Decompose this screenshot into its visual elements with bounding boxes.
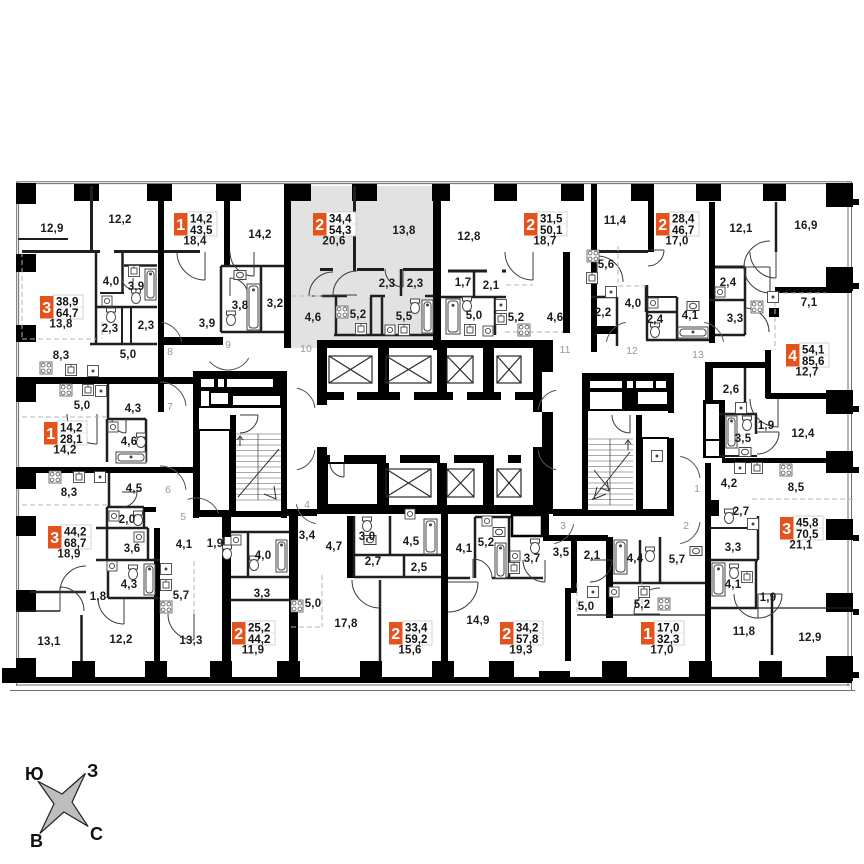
svg-text:12,2: 12,2 <box>108 214 131 226</box>
svg-text:4: 4 <box>788 348 797 365</box>
svg-text:2,4: 2,4 <box>647 314 664 326</box>
svg-text:1: 1 <box>643 626 652 643</box>
svg-text:3: 3 <box>560 520 566 532</box>
svg-text:4,6: 4,6 <box>305 312 322 324</box>
svg-text:2,7: 2,7 <box>733 506 750 518</box>
svg-text:3,9: 3,9 <box>128 281 145 293</box>
svg-text:14,2: 14,2 <box>60 423 82 435</box>
svg-text:3,5: 3,5 <box>735 433 752 445</box>
svg-text:12,7: 12,7 <box>795 367 818 379</box>
svg-text:2,0: 2,0 <box>119 514 136 526</box>
svg-text:3,7: 3,7 <box>524 553 541 565</box>
svg-text:17,0: 17,0 <box>665 236 688 248</box>
svg-text:17,0: 17,0 <box>650 645 673 657</box>
svg-text:3,3: 3,3 <box>727 313 744 325</box>
svg-text:5,2: 5,2 <box>350 309 367 321</box>
svg-text:12,8: 12,8 <box>457 231 481 243</box>
svg-text:4,0: 4,0 <box>625 298 642 310</box>
svg-text:11: 11 <box>560 344 571 356</box>
svg-text:2: 2 <box>502 626 511 643</box>
svg-text:1: 1 <box>176 217 185 234</box>
svg-text:14,2: 14,2 <box>248 229 271 241</box>
svg-text:1: 1 <box>46 426 55 443</box>
svg-text:2,1: 2,1 <box>584 550 601 562</box>
svg-text:3,2: 3,2 <box>267 298 284 310</box>
svg-text:18,9: 18,9 <box>57 549 80 561</box>
svg-text:19,3: 19,3 <box>509 645 532 657</box>
svg-text:7: 7 <box>167 401 173 413</box>
svg-text:3,5: 3,5 <box>553 547 570 559</box>
svg-text:6: 6 <box>165 484 171 496</box>
svg-text:12,1: 12,1 <box>729 223 753 235</box>
svg-text:17,8: 17,8 <box>334 618 358 630</box>
svg-text:3: 3 <box>782 521 791 538</box>
svg-text:14,2: 14,2 <box>53 445 76 457</box>
svg-text:38,9: 38,9 <box>56 297 78 309</box>
svg-text:2,3: 2,3 <box>407 278 424 290</box>
svg-text:18,4: 18,4 <box>183 236 207 248</box>
svg-text:13,3: 13,3 <box>179 635 202 647</box>
svg-text:1,7: 1,7 <box>455 277 472 289</box>
svg-text:11,9: 11,9 <box>242 645 265 657</box>
svg-text:4,1: 4,1 <box>176 539 193 551</box>
svg-text:14,9: 14,9 <box>466 615 489 627</box>
svg-text:1,9: 1,9 <box>207 538 224 550</box>
svg-text:20,6: 20,6 <box>322 236 345 248</box>
svg-text:13,8: 13,8 <box>392 225 416 237</box>
svg-text:8,3: 8,3 <box>53 350 70 362</box>
svg-text:9: 9 <box>225 339 231 351</box>
svg-text:4: 4 <box>304 499 310 511</box>
svg-text:33,4: 33,4 <box>405 623 428 635</box>
svg-text:5,2: 5,2 <box>508 312 525 324</box>
svg-text:5: 5 <box>180 511 186 523</box>
svg-text:34,4: 34,4 <box>329 214 352 226</box>
svg-text:2: 2 <box>391 626 400 643</box>
svg-text:3,0: 3,0 <box>359 531 376 543</box>
svg-text:4,1: 4,1 <box>725 579 742 591</box>
svg-text:4,5: 4,5 <box>126 483 143 495</box>
svg-text:45,8: 45,8 <box>796 518 819 530</box>
svg-text:5,2: 5,2 <box>478 537 495 549</box>
svg-text:12,9: 12,9 <box>798 632 821 644</box>
svg-text:5,5: 5,5 <box>396 311 413 323</box>
svg-text:3,4: 3,4 <box>299 530 316 542</box>
svg-text:2,5: 2,5 <box>411 562 428 574</box>
svg-text:2,3: 2,3 <box>102 323 119 335</box>
svg-text:4,5: 4,5 <box>403 536 420 548</box>
svg-text:2,3: 2,3 <box>379 278 396 290</box>
svg-text:2: 2 <box>658 217 667 234</box>
svg-text:2,3: 2,3 <box>138 320 155 332</box>
svg-text:2,6: 2,6 <box>723 384 740 396</box>
svg-text:8,5: 8,5 <box>788 482 805 494</box>
svg-text:4,3: 4,3 <box>125 403 142 415</box>
svg-text:8,3: 8,3 <box>61 487 78 499</box>
svg-text:10: 10 <box>300 343 312 355</box>
svg-text:5,7: 5,7 <box>173 590 190 602</box>
svg-text:В: В <box>30 831 43 851</box>
svg-text:7,1: 7,1 <box>801 297 818 309</box>
svg-text:4,4: 4,4 <box>627 553 644 565</box>
svg-text:8: 8 <box>167 346 173 358</box>
svg-text:13,8: 13,8 <box>49 319 73 331</box>
svg-text:1: 1 <box>694 483 700 495</box>
svg-text:2,1: 2,1 <box>483 280 500 292</box>
svg-text:12,9: 12,9 <box>40 223 63 235</box>
svg-text:1,9: 1,9 <box>760 592 777 604</box>
svg-text:З: З <box>87 761 98 781</box>
svg-text:1,8: 1,8 <box>90 591 107 603</box>
svg-text:5,6: 5,6 <box>598 259 615 271</box>
svg-text:2: 2 <box>683 520 689 532</box>
svg-text:11,8: 11,8 <box>733 626 756 638</box>
svg-text:14,2: 14,2 <box>190 214 212 226</box>
svg-text:4,3: 4,3 <box>121 579 138 591</box>
svg-text:21,1: 21,1 <box>789 540 813 552</box>
svg-text:5,0: 5,0 <box>74 400 91 412</box>
svg-text:31,5: 31,5 <box>540 214 563 226</box>
svg-text:Ю: Ю <box>25 764 44 784</box>
svg-text:4,0: 4,0 <box>255 550 272 562</box>
svg-text:54,1: 54,1 <box>802 345 825 357</box>
svg-text:18,7: 18,7 <box>533 236 556 248</box>
svg-text:4,1: 4,1 <box>682 310 699 322</box>
svg-text:3: 3 <box>50 530 59 547</box>
svg-text:12,2: 12,2 <box>109 634 132 646</box>
svg-text:5,0: 5,0 <box>305 598 322 610</box>
svg-text:2,7: 2,7 <box>365 556 382 568</box>
svg-text:4,6: 4,6 <box>121 436 138 448</box>
svg-text:44,2: 44,2 <box>64 527 86 539</box>
svg-text:5,0: 5,0 <box>578 601 595 613</box>
svg-text:4,6: 4,6 <box>547 312 564 324</box>
svg-text:4,0: 4,0 <box>103 276 120 288</box>
svg-text:С: С <box>90 824 103 844</box>
svg-text:5,0: 5,0 <box>120 349 137 361</box>
svg-text:12: 12 <box>626 345 638 357</box>
svg-text:4,1: 4,1 <box>456 543 473 555</box>
svg-text:16,9: 16,9 <box>794 220 817 232</box>
svg-text:11,4: 11,4 <box>604 215 627 227</box>
svg-text:3,3: 3,3 <box>725 542 742 554</box>
svg-text:4,2: 4,2 <box>721 478 738 490</box>
svg-text:5,7: 5,7 <box>669 554 686 566</box>
svg-text:5,0: 5,0 <box>466 310 483 322</box>
svg-text:2: 2 <box>234 626 243 643</box>
svg-text:13: 13 <box>692 349 704 361</box>
svg-text:3,8: 3,8 <box>232 300 249 312</box>
svg-text:2,2: 2,2 <box>595 307 612 319</box>
svg-text:3,3: 3,3 <box>254 588 271 600</box>
svg-text:25,2: 25,2 <box>248 623 270 635</box>
svg-text:34,2: 34,2 <box>516 623 538 635</box>
svg-text:5,2: 5,2 <box>634 599 651 611</box>
svg-text:4,7: 4,7 <box>326 541 343 553</box>
svg-text:15,6: 15,6 <box>398 645 421 657</box>
svg-text:3: 3 <box>42 300 51 317</box>
svg-text:3,9: 3,9 <box>199 318 216 330</box>
svg-text:2,4: 2,4 <box>720 277 737 289</box>
svg-text:17,0: 17,0 <box>657 623 679 635</box>
svg-text:12,4: 12,4 <box>791 428 815 440</box>
svg-text:3,6: 3,6 <box>124 543 141 555</box>
svg-text:2: 2 <box>526 217 535 234</box>
svg-text:2: 2 <box>315 217 324 234</box>
svg-text:13,1: 13,1 <box>37 636 61 648</box>
svg-text:28,4: 28,4 <box>672 214 695 226</box>
svg-text:1,9: 1,9 <box>758 420 775 432</box>
